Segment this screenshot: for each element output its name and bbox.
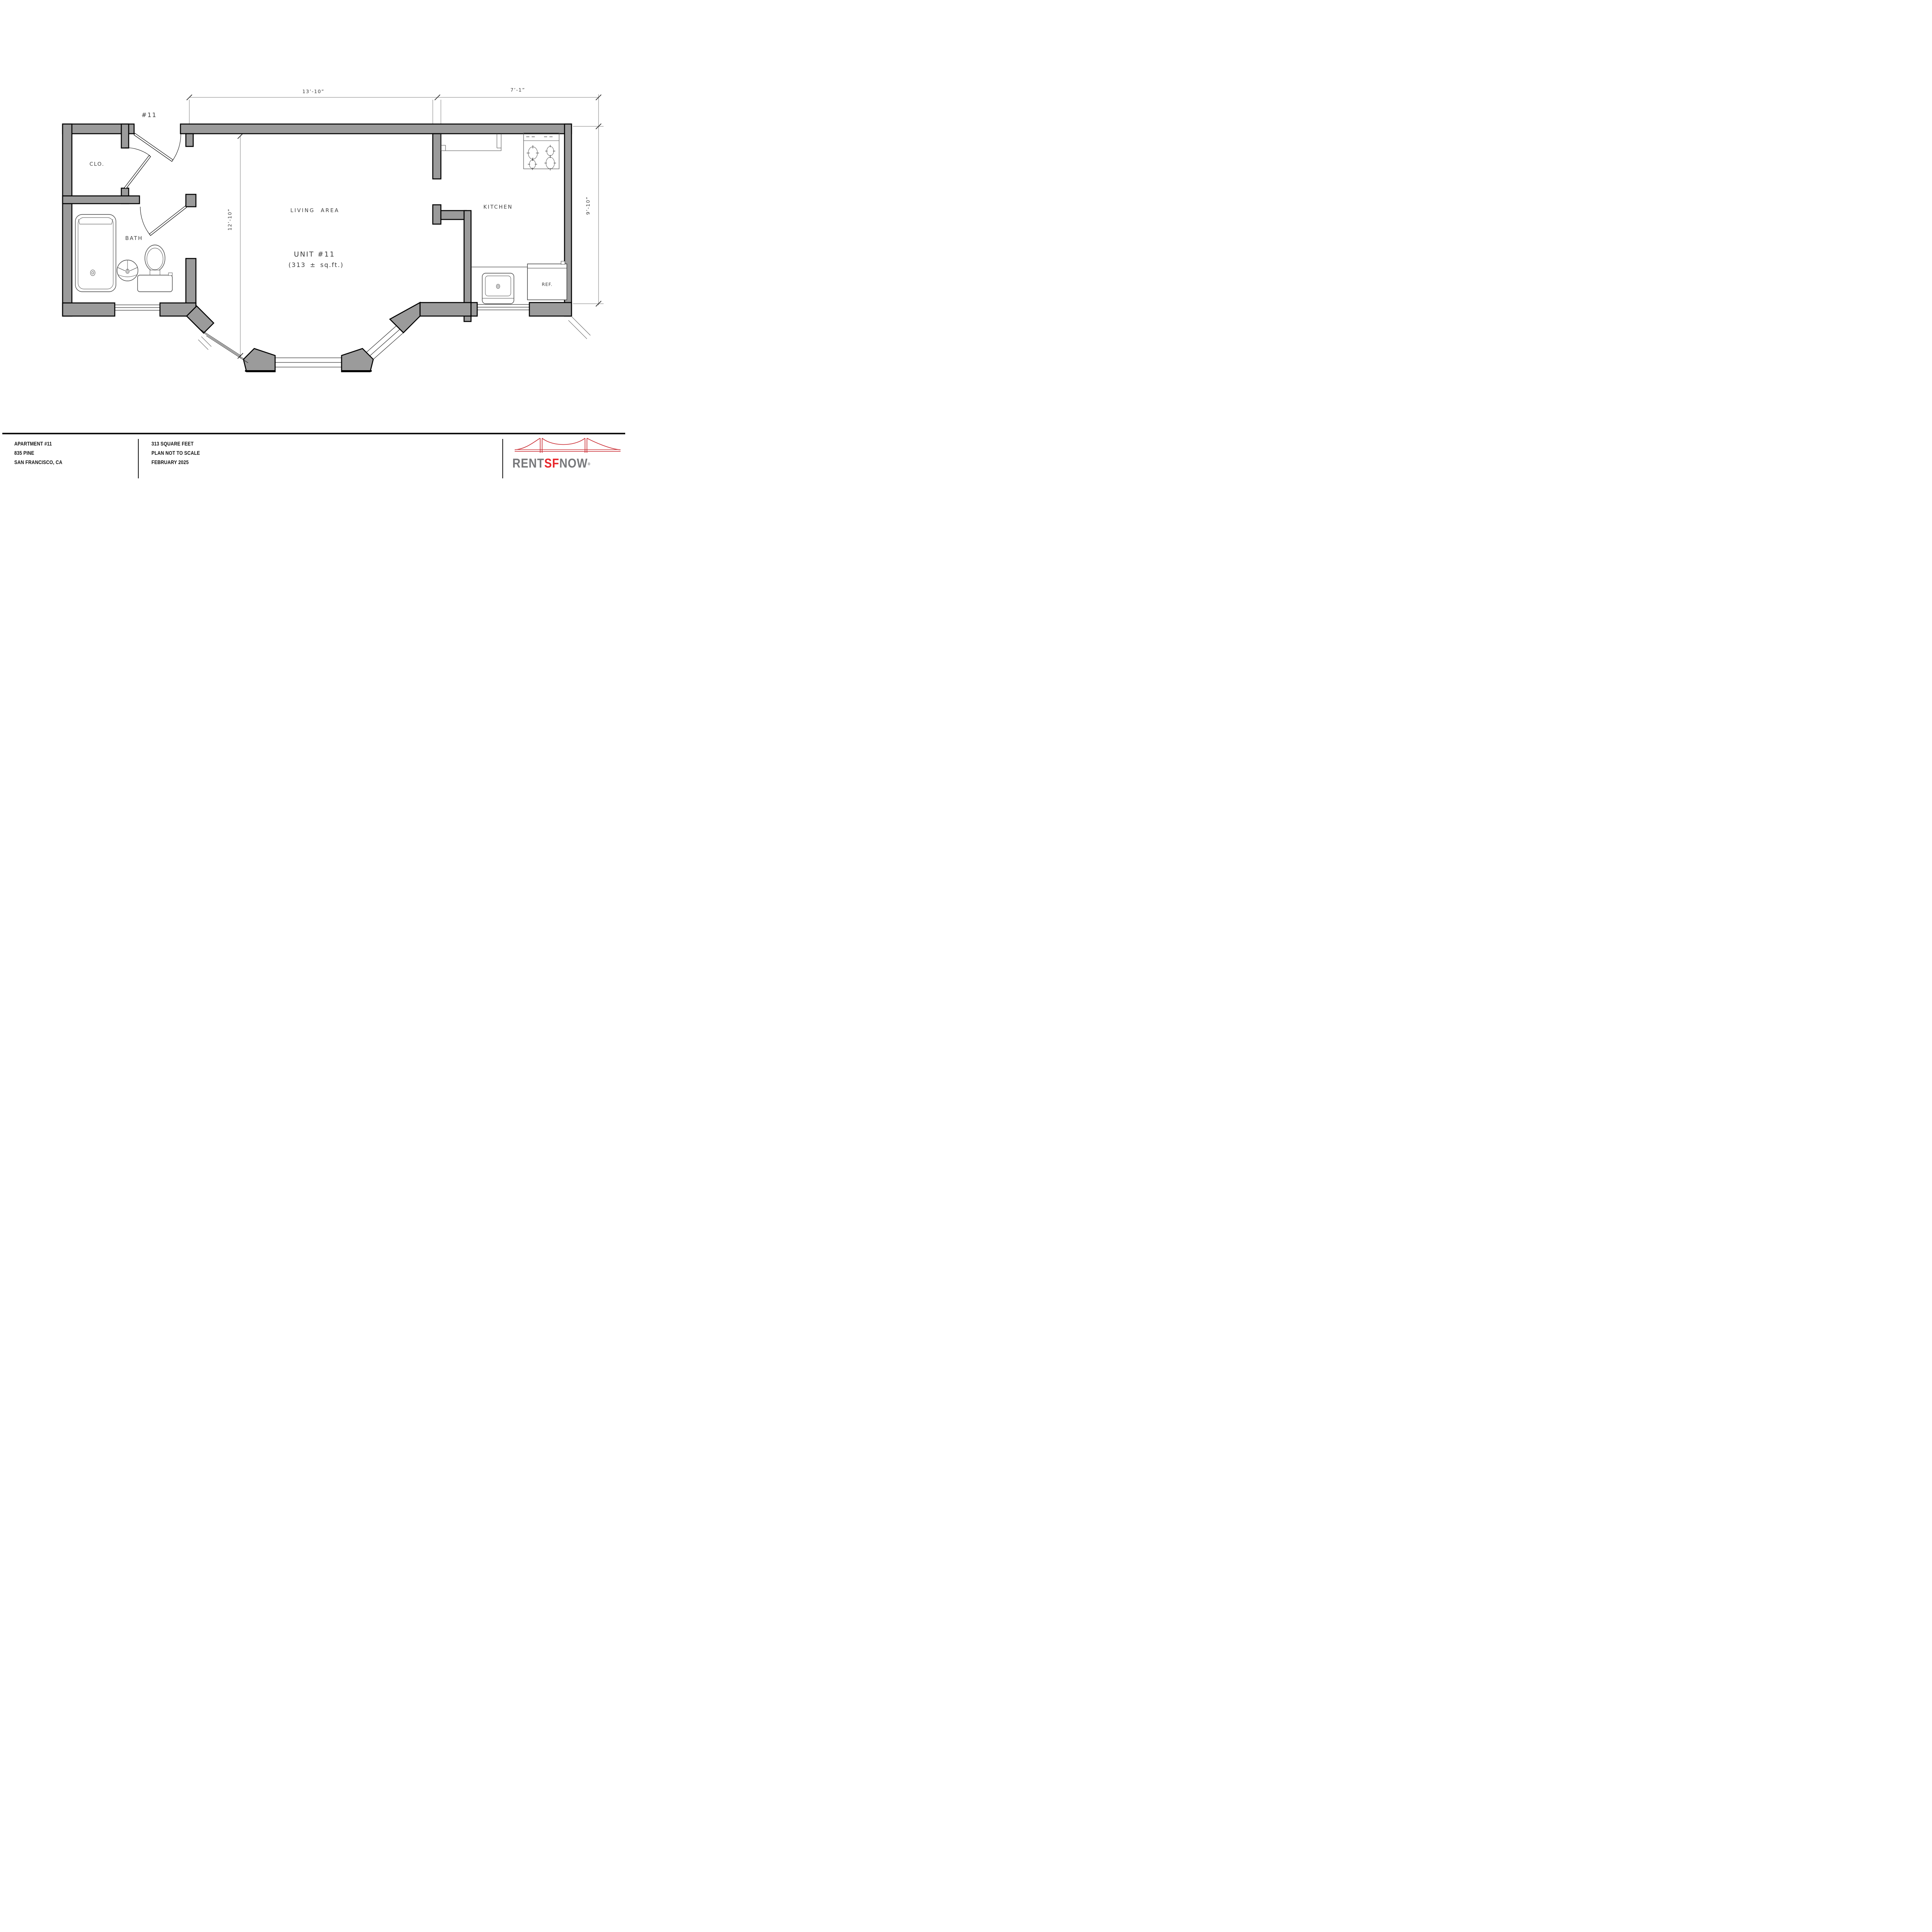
dim-top-left: 13’-10” (302, 88, 324, 94)
bath-sink (117, 260, 138, 281)
refrigerator (527, 261, 567, 300)
footer-address-block: APARTMENT #11 835 PINE SAN FRANCISCO, CA (14, 439, 71, 467)
footer-street: 835 PINE (14, 448, 34, 457)
bath-door (149, 206, 186, 236)
rentsfnow-logo: RENTSFNOW® (509, 434, 625, 477)
closet-door (124, 155, 151, 189)
bay-window-right (366, 326, 403, 359)
rentsfnow-wordmark: RENTSFNOW® (512, 456, 609, 471)
bay-window-center (275, 358, 342, 367)
bay-post-left (243, 349, 275, 372)
footer-scale-note: PLAN NOT TO SCALE (151, 448, 200, 457)
toilet (138, 245, 172, 292)
refrigerator-label: REF. (542, 282, 553, 287)
footer-date: FEBRUARY 2025 (151, 457, 189, 467)
footer-square-feet: 313 SQUARE FEET (151, 439, 194, 448)
stove (524, 133, 559, 170)
dim-kitchen-height: 9’-10” (585, 196, 591, 215)
wall-kitchen-west-horizontal (441, 211, 466, 219)
wall-bath-living-upper (186, 194, 196, 207)
wall-closet-east-upper (121, 124, 129, 148)
logo-rent: RENT (512, 456, 544, 470)
wall-bath-bottom-left (63, 303, 115, 316)
wall-kitchen-bottom-right (529, 303, 571, 316)
wall-kitchen-bottom-left (471, 303, 477, 316)
dim-top-right: 7’-1” (510, 87, 525, 93)
footer-apartment: APARTMENT #11 (14, 439, 52, 448)
floor-plan-page: 13’-10” 7’-1” 12’-10” 9’-10” (0, 0, 638, 493)
wall-top-right (180, 124, 571, 134)
kitchen-label: KITCHEN (483, 204, 513, 210)
doors (124, 133, 187, 236)
bath-bottom-window (115, 305, 160, 310)
footer-city: SAN FRANCISCO, CA (14, 457, 62, 467)
entry-door (134, 133, 173, 162)
logo-registered-mark: ® (588, 462, 590, 466)
bay-window-left (199, 329, 248, 363)
bath-door-swing-arc (140, 207, 150, 235)
wall-left (63, 124, 72, 316)
burners (527, 145, 556, 170)
floor-plan-drawing: 13’-10” 7’-1” 12’-10” 9’-10” (0, 0, 638, 493)
logo-now: NOW (559, 456, 588, 470)
living-area-label: LIVING AREA (291, 207, 340, 214)
bathtub (75, 214, 116, 292)
footer-details-block: 313 SQUARE FEET PLAN NOT TO SCALE FEBRUA… (151, 439, 209, 467)
wall-closet-bath (63, 196, 139, 204)
wall-bay-angled-right (390, 303, 420, 333)
closet-label: CLO. (90, 161, 105, 167)
entry-unit-label: #11 (141, 111, 157, 119)
unit-title-label: UNIT #11 (294, 250, 335, 259)
entry-door-swing-arc (172, 134, 181, 161)
kitchen-counter-top (441, 134, 501, 151)
wall-kitchen-top-stub (433, 134, 441, 179)
closet-door-swing-arc (125, 148, 150, 156)
wall-kitchen-entry-stub (433, 205, 441, 224)
wall-living-bottom-right (420, 303, 471, 316)
footer-column-divider-2 (502, 439, 503, 478)
dim-living-height: 12’-10” (227, 208, 233, 230)
bath-label: BATH (125, 235, 143, 241)
unit-area-label: (313 ± sq.ft.) (289, 261, 344, 269)
golden-gate-bridge-icon (509, 434, 625, 456)
wall-entry-stub (186, 134, 193, 146)
footer-column-divider-1 (138, 439, 139, 478)
kitchen-bottom-window (477, 304, 529, 310)
kitchen-sink-counter (471, 267, 527, 304)
logo-sf: SF (544, 456, 560, 470)
walls (63, 124, 571, 372)
bay-post-right (342, 349, 373, 372)
